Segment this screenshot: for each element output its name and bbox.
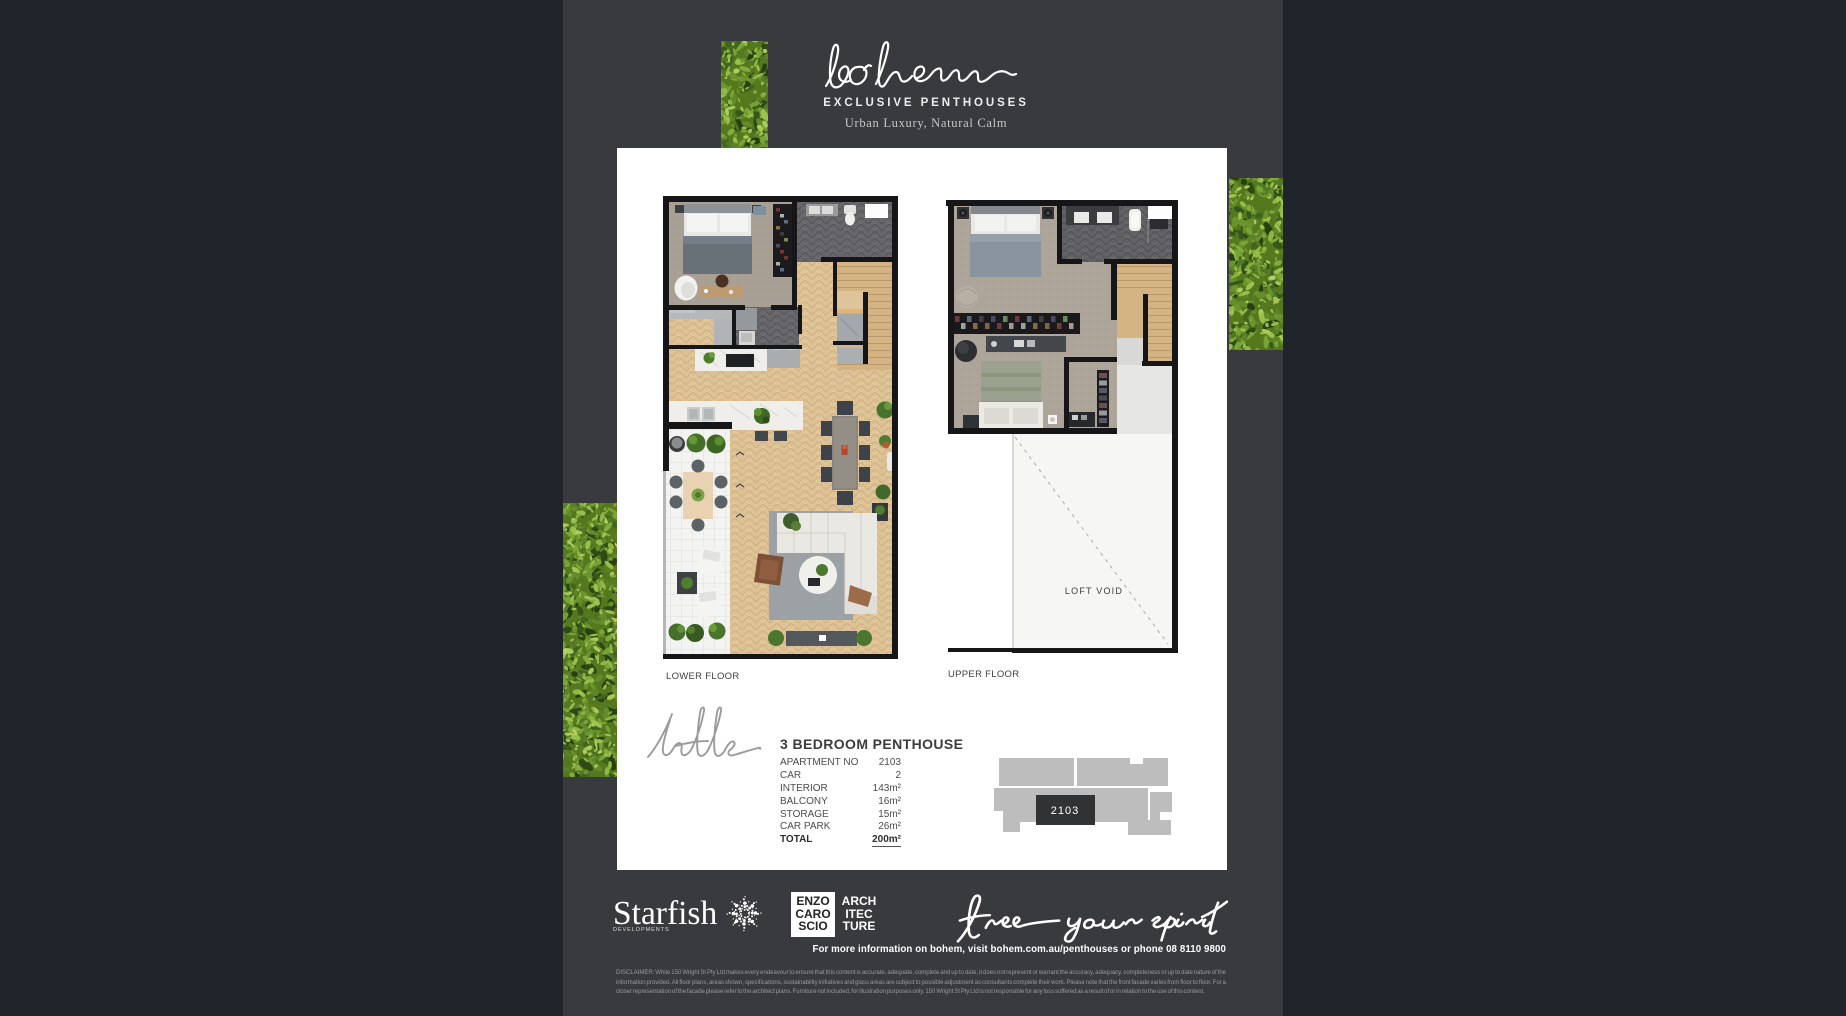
svg-text:LOFT VOID: LOFT VOID bbox=[1065, 586, 1123, 596]
svg-text:2103: 2103 bbox=[1051, 805, 1079, 817]
